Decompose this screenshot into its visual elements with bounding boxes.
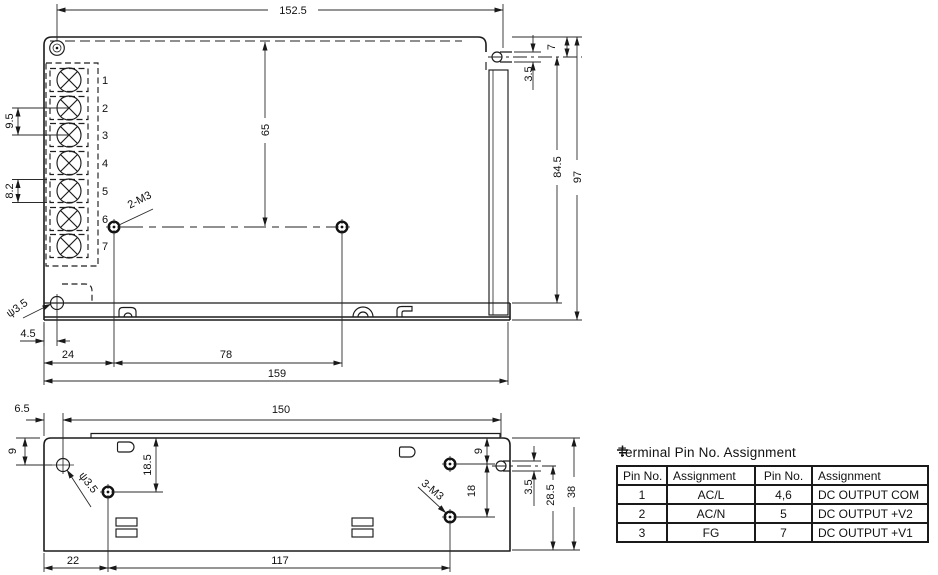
pin-table-row: 3 FG 7 DC OUTPUT +V1 xyxy=(617,523,928,542)
corner-screw-icon xyxy=(50,41,65,56)
vent-slot xyxy=(400,447,416,457)
side-view: 6.5 150 9 18.5 9 18 3.5 xyxy=(7,403,580,572)
mounting-hole-icon xyxy=(46,294,68,312)
vent-slot xyxy=(116,518,137,526)
keyhole-slot-icon xyxy=(492,461,558,471)
dim-lip-width: 150 xyxy=(272,404,290,416)
pin-cell: 4,6 xyxy=(755,485,812,504)
terminal-number: 5 xyxy=(102,186,108,198)
dim-screw-right-top: 9 xyxy=(473,448,485,454)
mounting-hole-icon xyxy=(52,456,74,474)
dim-height-inner: 65 xyxy=(260,124,272,136)
pin-cell: 2 xyxy=(617,504,667,523)
terminal-block: 1 2 3 4 5 6 7 xyxy=(46,63,108,266)
terminal-number: 2 xyxy=(102,103,108,115)
assignment-cell: FG xyxy=(667,523,755,542)
dim-width-top: 152.5 xyxy=(279,5,307,17)
dim-lip-offset: 6.5 xyxy=(14,403,29,415)
assignment-cell: AC/N xyxy=(667,504,755,523)
dim-slot-width: 3.5 xyxy=(523,66,535,81)
terminal-number: 1 xyxy=(102,75,108,87)
dim-height-total: 97 xyxy=(572,171,584,183)
dim-hole-offset: 4.5 xyxy=(20,328,35,340)
pin-table-title: Terminal Pin No. Assignment xyxy=(618,445,932,460)
dim-screw-span: 78 xyxy=(220,349,232,361)
header-assignment-right: Assignment xyxy=(812,466,928,485)
m3-screw-icon xyxy=(442,456,458,472)
vent-slot xyxy=(352,518,373,526)
fg-label: FG xyxy=(703,526,720,540)
dim-side-screw-span: 117 xyxy=(271,555,289,567)
pin-table-row: 2 AC/N 5 DC OUTPUT +V2 xyxy=(617,504,928,523)
dim-terminal-width: 8.2 xyxy=(4,183,16,198)
label-side-hole-dia: ψ3.5 xyxy=(76,470,100,496)
pin-cell: 5 xyxy=(755,504,812,523)
m3-screw-icon xyxy=(334,219,350,235)
keyhole-slot-icon xyxy=(488,52,582,62)
clip-icon xyxy=(397,307,412,318)
pin-cell: 3 xyxy=(617,523,667,542)
terminal-numbers: 1 2 3 4 5 6 7 xyxy=(102,75,108,253)
side-view-dimensions: 6.5 150 9 18.5 9 18 3.5 xyxy=(7,403,580,572)
vent-slot xyxy=(116,529,137,537)
dim-side-slot-width: 3.5 xyxy=(523,479,535,494)
top-view-dimensions: 152.5 65 9.5 8.2 7 3.5 xyxy=(4,4,584,385)
dim-terminal-pitch: 9.5 xyxy=(4,113,16,128)
pin-cell: 1 xyxy=(617,485,667,504)
pin-table-row: 1 AC/L 4,6 DC OUTPUT COM xyxy=(617,485,928,504)
assignment-cell: DC OUTPUT +V2 xyxy=(812,504,928,523)
terminal-number: 7 xyxy=(102,241,108,253)
m3-screw-icon xyxy=(106,219,122,235)
dim-screw-right-span: 18 xyxy=(466,485,478,497)
dim-side-height: 38 xyxy=(566,486,578,498)
vent-slot xyxy=(352,529,373,537)
assignment-cell: DC OUTPUT +V1 xyxy=(812,523,928,542)
pin-table-header-row: Pin No. Assignment Pin No. Assignment xyxy=(617,466,928,485)
terminal-number: 4 xyxy=(102,158,108,170)
dim-side-screw-left: 22 xyxy=(67,555,79,567)
dim-slot-to-base: 84.5 xyxy=(552,156,564,177)
header-pin-no-left: Pin No. xyxy=(617,466,667,485)
vent-slot xyxy=(118,442,135,452)
dim-hole-top: 9 xyxy=(7,448,19,454)
dim-slot-offset: 7 xyxy=(546,44,558,50)
pin-cell: 7 xyxy=(755,523,812,542)
assignment-cell: AC/L xyxy=(667,485,755,504)
dim-screw-left: 24 xyxy=(62,349,74,361)
terminal-number: 6 xyxy=(102,214,108,226)
header-pin-no-right: Pin No. xyxy=(755,466,812,485)
dim-slot-to-bottom: 28.5 xyxy=(545,484,557,505)
label-3-m3: 3-M3 xyxy=(419,478,446,503)
dim-width-total: 159 xyxy=(268,368,286,380)
header-assignment-left: Assignment xyxy=(667,466,755,485)
clip-icon xyxy=(353,307,373,317)
terminal-pin-table: Terminal Pin No. Assignment Pin No. Assi… xyxy=(616,445,932,543)
assignment-cell: DC OUTPUT COM xyxy=(812,485,928,504)
mechanical-drawing-page: 1 2 3 4 5 6 7 xyxy=(0,0,938,575)
dim-screw-top: 18.5 xyxy=(142,454,154,475)
label-2-m3: 2-M3 xyxy=(126,189,154,211)
clip-icon xyxy=(119,308,136,318)
top-view: 1 2 3 4 5 6 7 xyxy=(4,4,584,385)
terminal-number: 3 xyxy=(102,130,108,142)
